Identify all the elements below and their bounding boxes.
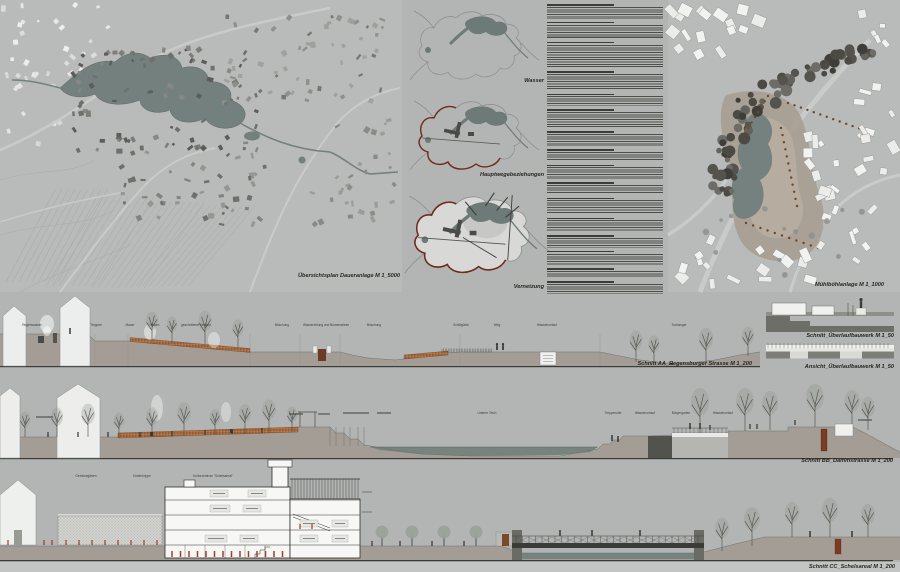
person-figure <box>204 430 206 432</box>
wood-gate <box>502 534 509 546</box>
allee-tree-dot <box>793 104 795 106</box>
allee-tree-dot <box>790 176 792 178</box>
forest-tree <box>739 113 746 120</box>
allee-tree-dot <box>839 120 841 122</box>
forest-tree <box>738 132 750 144</box>
tree-canopy <box>438 526 451 539</box>
person-figure <box>51 542 52 545</box>
building-footprint <box>245 207 249 211</box>
building-footprint <box>112 50 117 54</box>
annotation-label: geschnittene Hecken <box>181 323 211 327</box>
text-paragraph <box>547 71 663 90</box>
person-figure <box>689 423 691 425</box>
person-figure <box>749 426 750 429</box>
rust-steel-element <box>835 539 841 554</box>
presentation-board: RegenwasserTreppenMauerHeckengeschnitten… <box>0 0 900 572</box>
paragraph-heading-line <box>547 165 614 167</box>
person-figure <box>197 553 198 557</box>
person-figure <box>204 432 205 435</box>
person-figure <box>756 426 757 429</box>
building-tower <box>272 466 288 487</box>
allee-tree-dot <box>759 227 761 229</box>
allee-tree-dot <box>786 155 788 157</box>
person-figure <box>171 551 173 553</box>
person-figure <box>851 531 853 533</box>
person-figure <box>794 422 795 425</box>
paragraph-heading-line <box>547 94 614 96</box>
bin <box>150 432 153 436</box>
roof-box <box>184 480 195 487</box>
forest-tree <box>726 133 735 142</box>
person-figure <box>197 551 199 553</box>
weir-elevation-body <box>766 352 894 359</box>
person-figure <box>463 543 464 546</box>
diagram-water-pond <box>425 47 431 53</box>
label-muehlboehlanlage: Mühlböhlanlage M 1_1000 <box>815 282 885 288</box>
person-figure <box>205 551 207 553</box>
building-footprint <box>233 196 240 202</box>
planter <box>38 336 44 343</box>
person-figure <box>617 436 619 438</box>
annotation-label: Gemüsegärten <box>75 474 96 478</box>
board-canvas: RegenwasserTreppenMauerHeckengeschnitten… <box>0 0 900 572</box>
text-paragraph <box>547 109 663 128</box>
building-footprint <box>248 176 252 181</box>
text-paragraph <box>547 131 663 146</box>
person-figure <box>559 530 561 532</box>
person-figure <box>399 543 400 546</box>
person-figure <box>130 542 131 545</box>
forest-tree <box>757 80 767 90</box>
label-vernetzung: Vernetzung <box>514 284 545 290</box>
allee-tree-dot <box>784 148 786 150</box>
room-label-text-line <box>335 538 345 539</box>
allee-tree-dot <box>810 244 812 246</box>
house-silhouette <box>57 384 100 458</box>
building-footprint <box>10 57 14 61</box>
annotation-label: Hecken <box>149 323 160 327</box>
building-footprint <box>21 3 24 8</box>
tree-dot <box>782 227 786 231</box>
house-silhouette <box>3 306 26 366</box>
building-footprint <box>37 20 40 22</box>
person-figure <box>214 551 216 553</box>
person-figure <box>699 423 701 425</box>
person-figure <box>69 330 70 334</box>
house-door <box>14 530 22 545</box>
person-figure <box>265 553 266 557</box>
allee-tree-dot <box>813 111 815 113</box>
building-footprint <box>13 39 18 45</box>
building-footprint <box>857 9 866 19</box>
person-figure <box>502 343 504 345</box>
gate-pillar <box>327 346 331 353</box>
allee-tree-dot <box>744 132 746 134</box>
forest-tree <box>734 124 743 133</box>
text-paragraph <box>547 42 663 68</box>
text-paragraph <box>547 198 663 215</box>
annotation-label: Kulturzentrum "Schelsareal" <box>193 474 233 478</box>
allee-tree-dot <box>750 121 752 123</box>
person-figure <box>214 553 215 557</box>
diagram-node <box>468 132 474 136</box>
forest-tree <box>725 157 730 162</box>
text-paragraph <box>547 218 663 233</box>
text-paragraph <box>547 94 663 106</box>
tree-dot <box>782 272 788 278</box>
tree-dot <box>713 250 718 255</box>
person-figure <box>7 542 8 545</box>
allee-tree-dot <box>764 100 766 102</box>
person-figure <box>261 430 262 433</box>
forest-tree <box>719 186 725 192</box>
label-hauptwegebeziehungen: Hauptwegebeziehungen <box>480 172 545 178</box>
person-figure <box>156 540 158 542</box>
allee-tree-dot <box>832 118 834 120</box>
forest-tree <box>719 139 726 146</box>
person-figure <box>222 553 223 557</box>
text-paragraph <box>547 165 663 180</box>
building-footprint <box>330 197 334 202</box>
basin-plan-line <box>543 358 553 359</box>
person-figure <box>156 542 157 545</box>
allee-tree-dot <box>757 111 759 113</box>
building-footprint <box>72 111 75 116</box>
person-figure <box>231 553 232 557</box>
building-footprint <box>274 71 278 74</box>
bridge-deck <box>512 543 704 548</box>
allee-tree-dot <box>783 141 785 143</box>
allee-tree-dot <box>767 95 769 97</box>
label-schnitt-bb: Schnitt BB_Dammstrasse M 1_200 <box>801 458 894 464</box>
person-figure <box>69 328 71 330</box>
tower-cap <box>268 460 292 467</box>
forest-tree <box>724 190 730 196</box>
person-figure <box>47 434 48 437</box>
paragraph-heading-line <box>547 198 614 200</box>
person-figure <box>248 553 249 557</box>
building-footprint <box>709 278 715 289</box>
forest-tree <box>724 146 735 157</box>
tree-canopy <box>376 526 389 539</box>
weir-structure <box>812 306 834 315</box>
annotation-label: Wasserumlauf <box>713 411 733 415</box>
person-figure <box>188 553 189 557</box>
annotation-label: Wasserleitung und Blumenwiese <box>303 323 349 327</box>
label-uebersichtsplan: Übersichtsplan Daueranlage M 1_5000 <box>298 272 401 279</box>
building-footprint <box>860 134 871 144</box>
pond <box>299 157 306 164</box>
allee-tree-dot <box>781 134 783 136</box>
person-figure <box>104 540 106 542</box>
person-figure <box>43 542 44 545</box>
building-footprint <box>243 142 248 145</box>
building-footprint <box>389 166 392 168</box>
building-footprint <box>759 276 772 282</box>
annotation-label: Treppenufer <box>604 411 622 415</box>
person-figure <box>860 301 862 308</box>
person-figure <box>231 551 233 553</box>
forest-tree <box>781 85 793 97</box>
room-label-text-line <box>303 538 315 539</box>
paragraph-heading-line <box>547 109 614 111</box>
building-footprint <box>157 56 162 60</box>
allee-tree-dot <box>754 116 756 118</box>
bin <box>230 429 233 433</box>
tree-canopy <box>470 526 483 539</box>
forest-tree <box>774 90 782 98</box>
allee-tree-dot <box>780 127 782 129</box>
paragraph-body-lines <box>547 134 663 146</box>
person-figure <box>117 542 118 545</box>
person-figure <box>180 551 182 553</box>
tree-dot <box>840 208 844 212</box>
person-figure <box>91 540 93 542</box>
paragraph-heading-line <box>547 42 614 44</box>
tree-dot <box>703 229 710 236</box>
paragraph-body-lines <box>547 238 663 247</box>
building-footprint <box>879 167 887 175</box>
house-silhouette <box>0 388 20 458</box>
person-figure <box>756 424 758 426</box>
building-footprint <box>348 215 353 219</box>
person-figure <box>171 433 172 436</box>
building-footprint <box>375 33 379 37</box>
building-footprint <box>116 133 121 138</box>
room-label-text-line <box>208 538 224 539</box>
building-footprint <box>140 179 145 181</box>
section-baseline <box>0 560 893 561</box>
platform-base <box>672 437 728 458</box>
map-muehlboehlanlage <box>664 0 900 292</box>
building-footprint <box>263 165 267 169</box>
forest-tree <box>748 92 754 98</box>
allee-tree-dot <box>791 184 793 186</box>
annotation-label: Regenwasser <box>22 323 42 327</box>
forest-tree <box>811 62 821 72</box>
building-footprint <box>179 95 185 100</box>
label-wasser: Wasser <box>524 78 545 84</box>
building-footprint <box>100 139 105 143</box>
person-figure <box>47 432 49 434</box>
building-footprint <box>142 196 148 198</box>
person-figure <box>809 533 810 537</box>
map-uebersichtsplan <box>0 0 402 292</box>
person-figure <box>639 532 640 536</box>
building-footprint <box>340 60 343 65</box>
paragraph-body-lines <box>547 74 663 90</box>
forest-tree <box>749 98 757 106</box>
person-figure <box>239 551 241 553</box>
person-figure <box>265 551 267 553</box>
paragraph-heading-line <box>547 218 614 220</box>
annotation-label: Tuchanger <box>671 323 687 327</box>
blossom-mist <box>208 332 220 348</box>
person-figure <box>117 540 119 542</box>
weir-elevation-band <box>766 348 894 352</box>
paragraph-body-lines <box>547 45 663 69</box>
annotation-label: Kinderkrippe <box>133 474 151 478</box>
board-bottom-margin <box>0 562 900 572</box>
tree-dot <box>859 209 865 215</box>
map-a-background <box>0 0 402 292</box>
label-ansicht-ueberlaufbauwerk: Ansicht_Überlaufbauwerk M 1_50 <box>804 363 895 370</box>
paragraph-heading-line <box>547 281 614 283</box>
building-footprint <box>112 100 117 102</box>
paragraph-body-lines <box>547 200 663 214</box>
diagram-node <box>470 231 477 235</box>
person-figure <box>77 432 79 434</box>
room-label-text-line <box>246 508 258 509</box>
platform-deck <box>672 433 728 437</box>
planter <box>53 333 57 343</box>
room-label-text-line <box>243 538 255 539</box>
person-figure <box>180 553 181 557</box>
person-figure <box>273 553 274 557</box>
paragraph-heading-line <box>547 22 614 24</box>
building-footprint <box>872 83 882 92</box>
text-paragraph <box>547 281 663 293</box>
tree-dot <box>793 229 798 234</box>
person-figure <box>299 524 301 526</box>
building-footprint <box>331 43 334 46</box>
allee-tree-dot <box>819 113 821 115</box>
text-paragraph <box>547 22 663 39</box>
paragraph-heading-line <box>547 268 614 270</box>
paragraph-heading-line <box>547 251 614 253</box>
person-figure <box>591 530 593 532</box>
person-figure <box>171 431 173 433</box>
tree-canopy <box>406 526 419 539</box>
allee-tree-dot <box>788 237 790 239</box>
person-figure <box>496 345 498 350</box>
person-figure <box>709 425 711 427</box>
annotation-label: Schilfgürtel <box>453 323 469 327</box>
annotation-label: Wasserumlauf <box>537 323 557 327</box>
building-footprint <box>812 134 819 148</box>
fountain-mist <box>43 326 51 336</box>
person-figure <box>431 541 433 543</box>
person-figure <box>311 526 312 529</box>
building-footprint <box>281 95 286 100</box>
person-figure <box>51 540 53 542</box>
person-figure <box>399 541 401 543</box>
allee-tree-dot <box>787 102 789 104</box>
paragraph-body-lines <box>547 220 663 232</box>
weir-elevation-gap <box>840 352 862 359</box>
person-figure <box>611 435 613 437</box>
building-footprint <box>879 23 885 28</box>
annotation-label: Mauer <box>125 323 135 327</box>
room-label-text-line <box>303 523 315 524</box>
person-figure <box>709 427 710 430</box>
person-figure <box>171 553 172 557</box>
person-figure <box>139 432 141 434</box>
building-footprint <box>86 110 91 117</box>
weir-elevation-gap <box>790 352 808 359</box>
person-figure <box>611 437 612 441</box>
paragraph-body-lines <box>547 96 663 105</box>
building-footprint <box>225 15 229 20</box>
person-figure <box>699 425 700 429</box>
paragraph-body-lines <box>547 284 663 293</box>
blossom-mist <box>221 402 231 422</box>
building-footprint <box>121 192 125 196</box>
person-figure <box>496 343 498 345</box>
person-figure <box>617 438 618 442</box>
paragraph-body-lines <box>547 185 663 194</box>
text-paragraph <box>547 251 663 266</box>
allee-tree-dot <box>787 162 789 164</box>
forest-tree <box>715 170 726 181</box>
paragraph-body-lines <box>547 271 663 278</box>
tree-dot <box>824 218 830 224</box>
building-footprint <box>117 139 120 142</box>
paragraph-body-lines <box>547 167 663 179</box>
annotation-label: Bürgergarten <box>672 411 691 415</box>
person-figure <box>689 425 690 429</box>
gate-pillar <box>313 346 317 353</box>
allee-tree-dot <box>760 105 762 107</box>
tree-dot <box>762 206 768 212</box>
room-label-text-line <box>213 493 225 494</box>
person-figure <box>463 541 465 543</box>
tree-dot <box>809 232 816 239</box>
building-footprint <box>232 66 236 71</box>
paragraph-body-lines <box>547 25 663 39</box>
person-figure <box>256 551 258 553</box>
railing-strip <box>766 345 894 348</box>
allee-tree-dot <box>851 125 853 127</box>
person-figure <box>639 530 641 532</box>
paragraph-heading-line <box>547 149 614 151</box>
allee-tree-dot <box>774 232 776 234</box>
building-footprint <box>803 148 812 158</box>
fence-rail <box>58 514 162 516</box>
building-footprint <box>123 201 126 204</box>
forest-tree <box>716 148 722 154</box>
river-water <box>516 553 700 559</box>
building-footprint <box>140 145 144 150</box>
building-footprint <box>143 63 146 68</box>
forest-tree <box>770 97 782 109</box>
allee-tree-dot <box>845 123 847 125</box>
building-footprint <box>373 155 377 159</box>
building-footprint <box>101 62 103 65</box>
paragraph-heading-line <box>547 131 614 133</box>
person-figure <box>282 553 283 557</box>
allee-tree-dot <box>796 205 798 207</box>
person-figure <box>256 553 257 557</box>
paragraph-heading-line <box>547 235 614 237</box>
forest-tree <box>845 44 855 54</box>
tree-dot <box>836 254 841 259</box>
paragraph-body-lines <box>547 112 663 128</box>
person-figure <box>104 542 105 545</box>
room-label-text-line <box>335 523 345 524</box>
allee-tree-dot <box>794 198 796 200</box>
forest-tree <box>805 64 810 69</box>
building-footprint <box>238 74 243 78</box>
person-figure <box>139 434 140 437</box>
section-baseline <box>0 458 893 459</box>
annotation-label: Unterer Teich <box>478 411 497 415</box>
building-footprint <box>854 99 865 106</box>
person-figure <box>43 540 45 542</box>
tree-dot <box>777 258 781 262</box>
allee-tree-dot <box>747 127 749 129</box>
person-figure <box>65 540 67 542</box>
